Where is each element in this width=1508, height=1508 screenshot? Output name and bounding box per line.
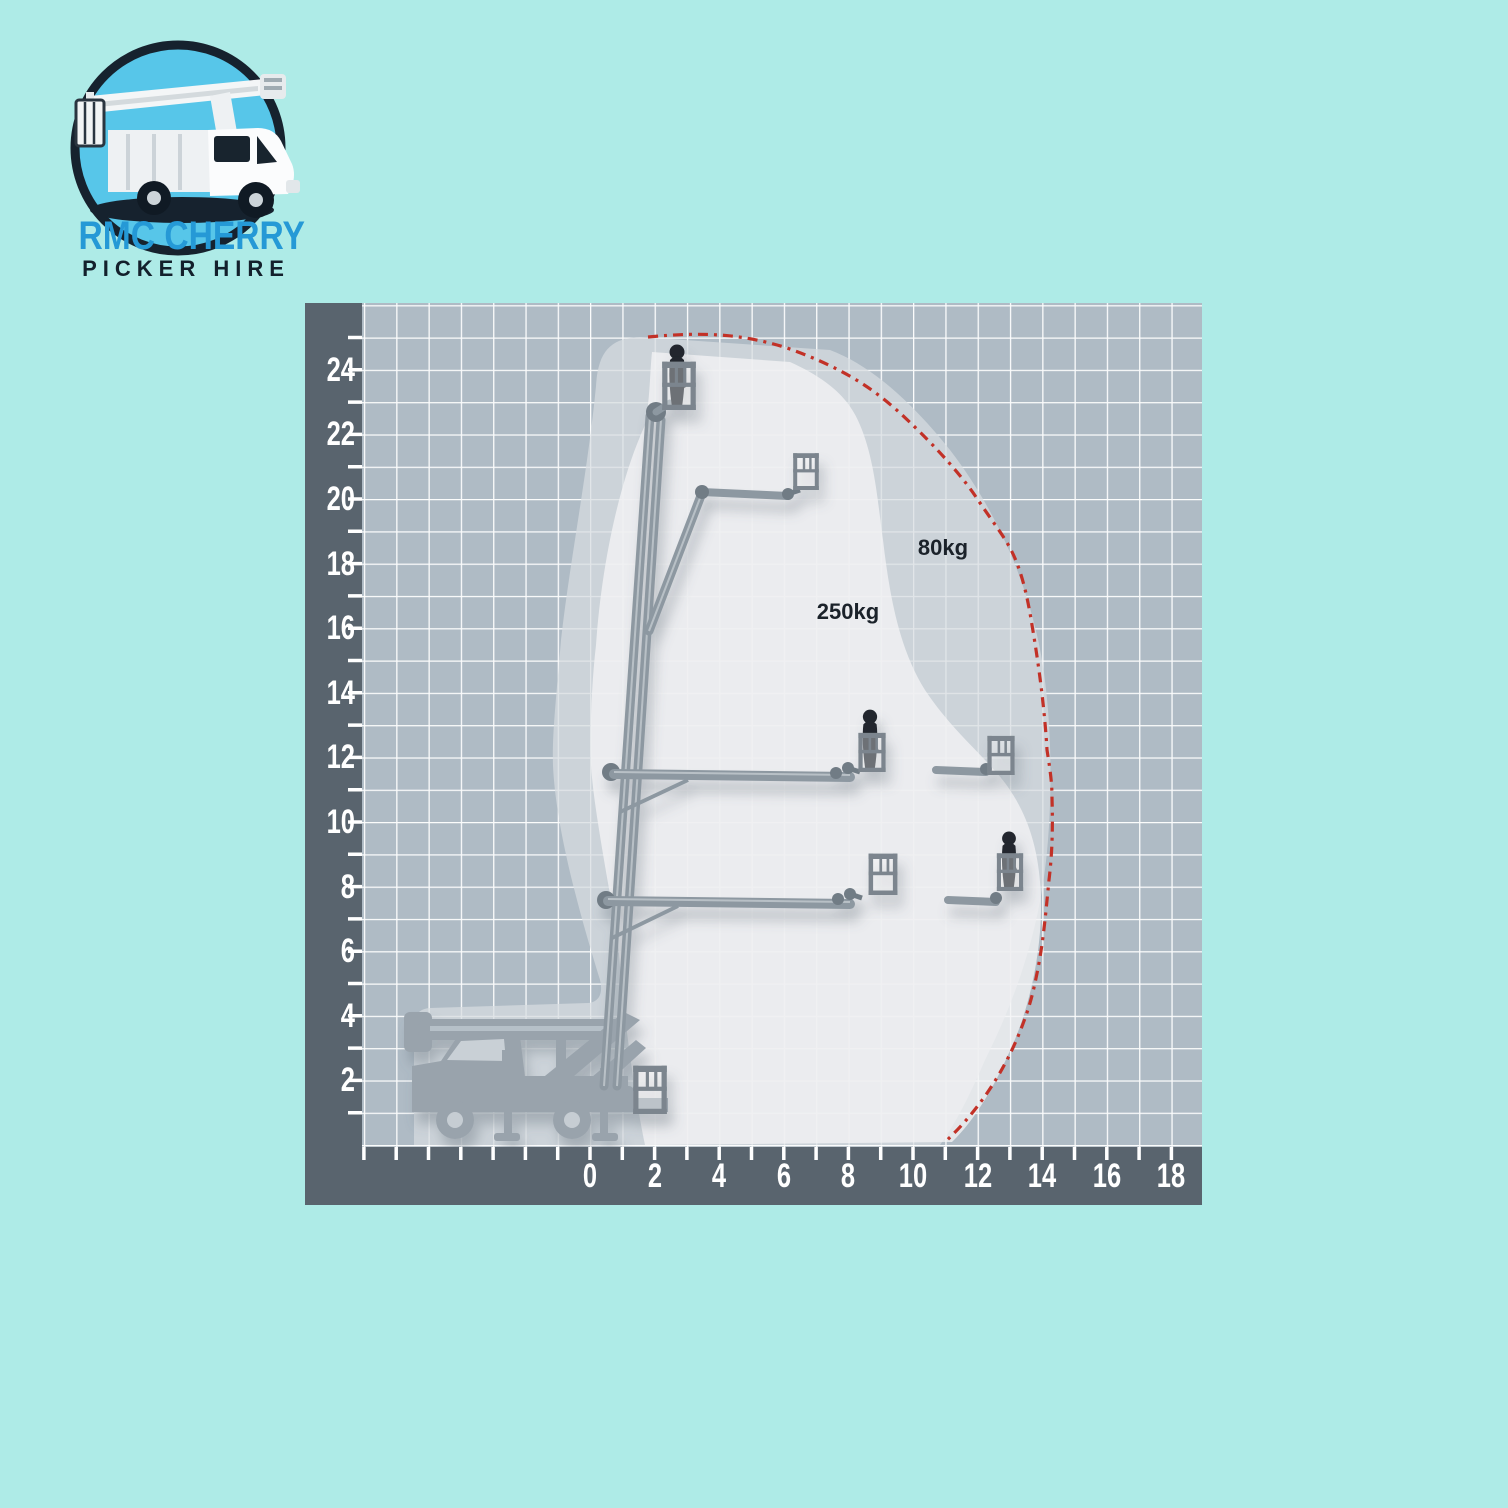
basket bbox=[662, 362, 696, 410]
x-tick-label: 8 bbox=[829, 1155, 868, 1197]
x-tick-label: 4 bbox=[700, 1155, 739, 1197]
y-tick-label: 8 bbox=[318, 866, 356, 908]
logo: RMC CHERRY PICKER HIRE bbox=[58, 34, 314, 266]
y-tick-label: 6 bbox=[318, 930, 356, 972]
x-tick-label: 0 bbox=[571, 1155, 610, 1197]
x-tick-label: 6 bbox=[764, 1155, 803, 1197]
y-tick-label: 22 bbox=[318, 413, 356, 455]
x-tick-label: 16 bbox=[1087, 1155, 1126, 1197]
y-tick-label: 20 bbox=[318, 478, 356, 520]
basket bbox=[987, 736, 1014, 775]
brand-line1: RMC CHERRY bbox=[78, 214, 293, 259]
basket bbox=[997, 853, 1023, 891]
y-tick-label: 16 bbox=[318, 607, 356, 649]
x-axis-band bbox=[305, 1147, 1202, 1205]
basket bbox=[793, 453, 819, 490]
chart-art bbox=[305, 303, 1202, 1205]
x-tick-label: 10 bbox=[894, 1155, 933, 1197]
y-tick-label: 12 bbox=[318, 736, 356, 778]
stowed-basket bbox=[633, 1066, 667, 1114]
x-tick-label: 14 bbox=[1023, 1155, 1062, 1197]
x-tick-label: 2 bbox=[635, 1155, 674, 1197]
y-tick-label: 18 bbox=[318, 543, 356, 585]
working-envelope-chart: 24681012141618202224 024681012141618 80k… bbox=[305, 303, 1202, 1205]
brand-line2: PICKER HIRE bbox=[58, 256, 314, 282]
x-tick-label: 12 bbox=[958, 1155, 997, 1197]
y-tick-label: 4 bbox=[318, 995, 356, 1037]
y-tick-label: 14 bbox=[318, 672, 356, 714]
page: { "page": { "background_color": "#aeebe7… bbox=[0, 0, 1508, 1508]
basket bbox=[869, 854, 898, 895]
y-tick-label: 2 bbox=[318, 1059, 356, 1101]
y-tick-label: 24 bbox=[318, 349, 356, 391]
zone-label-250kg: 250kg bbox=[778, 599, 918, 625]
y-tick-label: 10 bbox=[318, 801, 356, 843]
basket bbox=[858, 733, 885, 772]
x-tick-label: 18 bbox=[1152, 1155, 1191, 1197]
zone-label-80kg: 80kg bbox=[873, 535, 1013, 561]
